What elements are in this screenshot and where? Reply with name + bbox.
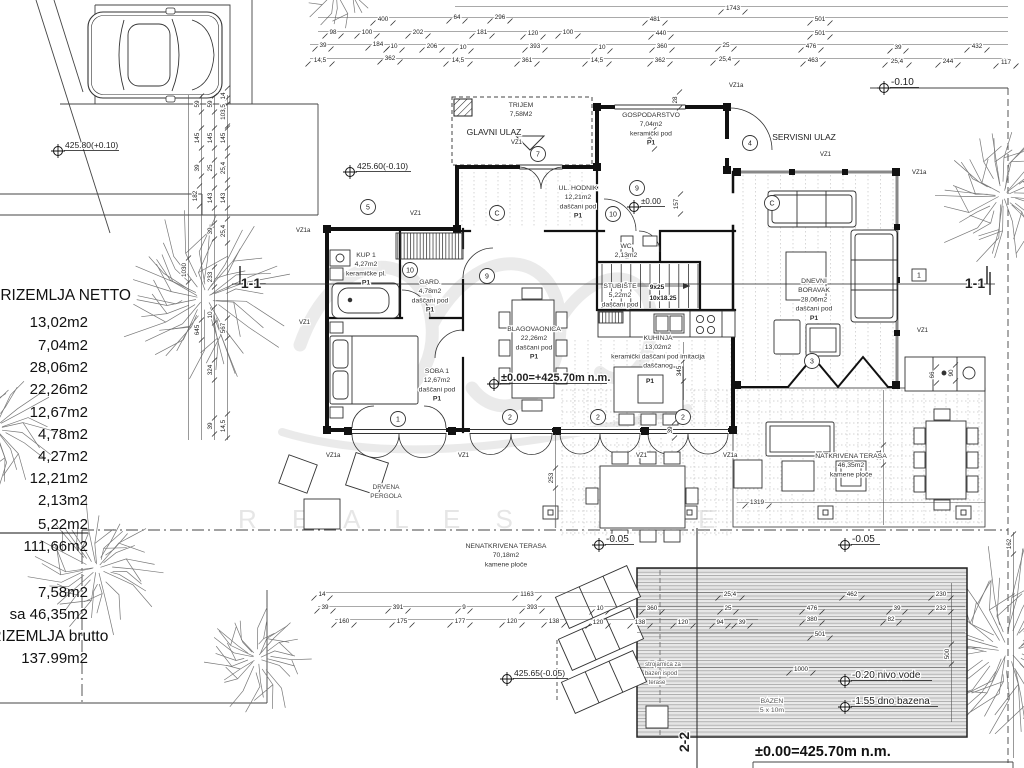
dim-text: 481 [650, 16, 661, 23]
area-value: 28,06m2 [30, 359, 88, 376]
sun-loungers [555, 566, 646, 714]
dim-text: 244 [943, 58, 954, 65]
room-label-stubiste: daščani pod [602, 301, 639, 308]
room-label-soba-1: daščani pod [419, 386, 456, 393]
room-label-natkrivena-terasa: 46,35m2 [838, 462, 865, 469]
dim-text: 98 [329, 29, 337, 36]
tree [124, 210, 290, 379]
dim-text: 463 [808, 57, 819, 64]
dim-text: 39 [894, 44, 902, 51]
annotation-label: terase [649, 680, 666, 686]
room-label-gard: daščani pod [412, 297, 449, 304]
kitchen-counter [598, 311, 735, 337]
room-label-blagovaonica: BLAGOVAONICA [507, 326, 561, 333]
dim-text: 145 [207, 132, 214, 143]
position-marker-text: 9 [635, 185, 639, 192]
area-value: 7,58m2 [38, 584, 88, 601]
dim-text: 25 [722, 42, 730, 49]
room-label-wc: 2,13m2 [615, 252, 638, 259]
dim-text: 1163 [520, 591, 534, 598]
room-label-blagovaonica: daščani pod [516, 344, 553, 351]
room-label-dnevni-boravak: 28,06m2 [801, 296, 828, 303]
area-table-total-label: PRIZEMLJA brutto [0, 628, 108, 645]
room-label-dnevni-boravak: BORAVAK [798, 287, 830, 294]
dim-text: 440 [656, 30, 667, 37]
dim-text: 103,5 [220, 104, 227, 120]
room-label-kup-1: P1 [362, 280, 371, 287]
dim-text: 100 [362, 29, 373, 36]
room-label-kup-1: 4,27m2 [355, 261, 378, 268]
dim-text: 100 [563, 29, 574, 36]
dim-text: 182 [192, 190, 199, 201]
elevation-text: -0.05 [606, 534, 629, 545]
room-label-gard: P1 [426, 307, 435, 314]
dim-text: 120 [528, 30, 539, 37]
dim-text: 391 [393, 604, 404, 611]
dim-text: 10 [598, 44, 606, 51]
dim-text: 39 [319, 42, 327, 49]
dim-text: 360 [647, 605, 658, 612]
dim-text: 39 [194, 164, 201, 172]
room-label-natkrivena-terasa: NATKRIVENA TERASA [815, 453, 887, 460]
elevation-text: 425.80(+0.10) [65, 140, 118, 150]
dim-text: 253 [548, 472, 555, 483]
dim-text: 202 [413, 29, 424, 36]
dim-text: 25,4 [220, 224, 227, 237]
area-value: 12,21m2 [30, 470, 88, 487]
dim-text: 39 [667, 426, 674, 434]
living-room-furniture [768, 191, 897, 356]
dim-text: 25 [207, 164, 214, 172]
dim-text: 181 [477, 29, 488, 36]
wall-type-label: VZ1 [458, 453, 470, 459]
room-label-gard: 4,78m2 [419, 288, 442, 295]
annotation-label: 9x25 [650, 284, 665, 291]
dim-text: 25,4 [891, 58, 904, 65]
room-label-nenatkrivena-terasa: kamene ploče [485, 561, 528, 568]
dim-text: 25,4 [220, 161, 227, 174]
dim-text: 59 [194, 100, 201, 108]
section-label: 1-1 [241, 275, 261, 291]
dim-text: 1743 [726, 5, 741, 12]
dim-text: 25,4 [724, 591, 737, 598]
area-value: 4,78m2 [38, 426, 88, 443]
position-marker-text: 10 [609, 211, 617, 218]
dim-text: 82 [887, 616, 895, 623]
position-marker-text: 10 [406, 267, 414, 274]
wall-type-label: VZ1a [326, 453, 341, 459]
dim-text: 64 [453, 14, 461, 21]
dim-text: 120 [507, 618, 518, 625]
elevation-marker: ±0.00 [627, 197, 665, 214]
room-label-gospodarstvo: keramički pod [630, 130, 672, 137]
outdoor-kitchen [905, 357, 985, 391]
room-label-gospodarstvo: 7,04m2 [640, 121, 663, 128]
position-marker-text: C [769, 200, 774, 207]
position-marker-text: 5 [366, 204, 370, 211]
pool-machine-room [646, 706, 668, 728]
dim-text: 10 [596, 605, 604, 612]
position-marker-text: 1 [396, 416, 400, 423]
dim-text: 39 [893, 605, 901, 612]
dim-text: 145 [220, 132, 227, 143]
dim-text: 14 [318, 591, 326, 598]
room-label-bazen: BAZEN [761, 698, 784, 705]
dim-text: 362 [655, 57, 666, 64]
section-label: 1-1 [965, 275, 985, 291]
room-label-blagovaonica: P1 [530, 354, 539, 361]
room-label-bazen: 5 x 10m [760, 707, 785, 714]
dim-text: 120 [593, 619, 604, 626]
dim-text: 59 [207, 100, 214, 108]
elevation-marker: 425.60(-0.10) [343, 161, 411, 179]
dim-text: 25 [724, 605, 732, 612]
room-label-kup-1: KUP 1 [356, 252, 376, 259]
room-label-soba-1: 12,67m2 [424, 377, 451, 384]
dim-text: 501 [815, 30, 826, 37]
dim-text: 94 [716, 619, 724, 626]
dim-text: 567 [220, 322, 227, 333]
dim-text: 39 [321, 604, 329, 611]
dim-text: 345 [676, 365, 683, 376]
dim-text: 296 [495, 14, 506, 21]
area-value: 7,04m2 [38, 337, 88, 354]
area-value: 22,26m2 [30, 381, 88, 398]
dim-text: 476 [807, 605, 818, 612]
dim-text: 177 [455, 618, 466, 625]
room-label-blagovaonica: 22,26m2 [521, 335, 548, 342]
area-value: 2,13m2 [38, 492, 88, 509]
porch-pillar [454, 99, 472, 116]
pool-basin [637, 568, 967, 737]
dim-text: 184 [373, 41, 384, 48]
room-label-trijem: TRIJEM [509, 102, 534, 109]
annotation-label: SERVISNI ULAZ [772, 132, 836, 142]
dim-text: 28 [672, 96, 679, 104]
elevation-text: 425.60(-0.10) [357, 161, 408, 171]
annotation-label: DRVENA [373, 484, 401, 491]
area-value: 111,66m2 [24, 538, 89, 555]
room-label-kup-1: keramičke pl. [346, 270, 386, 277]
position-marker-text: 2 [596, 414, 600, 421]
wall-type-label: VZ1a [723, 453, 738, 459]
dim-text: 400 [378, 16, 389, 23]
elevation-text: -0.05 [852, 534, 875, 545]
dim-text: 160 [339, 618, 350, 625]
dim-text: 1000 [794, 666, 809, 673]
wall-type-label: VZ1a [912, 170, 927, 176]
kitchen-table [614, 367, 683, 425]
position-marker-text: 7 [536, 151, 540, 158]
wall-type-label: VZ1 [410, 211, 422, 217]
room-label-gospodarstvo: GOSPODARSTVO [622, 112, 680, 119]
room-label-kuhinja: 13,02m2 [645, 344, 672, 351]
room-label-stubiste: 5,22m2 [609, 292, 632, 299]
wall-type-label: VZ1 [917, 328, 929, 334]
room-label-soba-1: P1 [433, 396, 442, 403]
room-label-trijem: 7,58M2 [510, 111, 533, 118]
dim-text: 360 [657, 43, 668, 50]
room-label-natkrivena-terasa: kamene ploče [830, 471, 873, 478]
wall-type-label: VZ1a [729, 83, 744, 89]
dim-text: 14,5 [314, 57, 327, 64]
room-label-nenatkrivena-terasa: 70,18m2 [493, 552, 520, 559]
dim-text: 157 [673, 198, 680, 209]
terrace-dining [914, 409, 978, 510]
dim-text: 10 [390, 43, 398, 50]
dim-text: 120 [678, 619, 689, 626]
dim-text: 501 [815, 16, 826, 23]
position-marker-text: 2 [681, 414, 685, 421]
area-table-title: PRIZEMLJA NETTO [0, 287, 131, 304]
elevation-marker: -0.05 [838, 534, 880, 552]
dim-text: 39 [738, 619, 746, 626]
room-label-ul-hodnik: 12,21m2 [565, 194, 592, 201]
position-marker-text: 2 [508, 414, 512, 421]
wall-type-label: VZ1 [820, 152, 832, 158]
car [88, 8, 222, 102]
dim-text: 39 [207, 422, 214, 430]
area-value: 4,27m2 [38, 448, 88, 465]
area-value: sa 46,35m2 [10, 606, 88, 623]
room-label-stubiste: STUBIŠTE [603, 281, 637, 290]
room-label-ul-hodnik: daščani pod [560, 203, 597, 210]
elevation-text: 425.65(-0.05) [514, 668, 565, 678]
dim-text: 1030 [181, 263, 188, 278]
dim-text: 117 [1001, 59, 1012, 66]
elevation-marker: -0.10 [877, 77, 919, 95]
elevation-text: ±0.00=+425.70m n.m. [501, 372, 610, 384]
dim-text: 10 [459, 44, 467, 51]
room-label-dnevni-boravak: DNEVNI [801, 278, 827, 285]
room-label-gospodarstvo: P1 [647, 140, 656, 147]
dim-text: 393 [530, 43, 541, 50]
room-label-dnevni-boravak: P1 [810, 315, 819, 322]
wardrobe [396, 233, 463, 259]
dim-text: 324 [207, 364, 214, 375]
area-table-total-value: 137.99m2 [21, 650, 88, 667]
pool [637, 568, 967, 737]
dim-text: 175 [397, 618, 408, 625]
room-label-dnevni-boravak: daščani pod [796, 306, 833, 313]
dim-text: 362 [385, 55, 396, 62]
dim-text: 232 [936, 605, 947, 612]
tree [935, 132, 1024, 262]
dim-text: 25,4 [719, 56, 732, 63]
area-value: 12,67m2 [30, 404, 88, 421]
dim-text: 14,5 [220, 419, 227, 432]
dim-text: 143 [220, 192, 227, 203]
dim-text: 361 [522, 57, 533, 64]
dim-text: 230 [936, 591, 947, 598]
annotation-label: 10x18.25 [649, 295, 676, 302]
room-label-nenatkrivena-terasa: NENATKRIVENA TERASA [466, 543, 547, 550]
dim-text: 39 [207, 227, 214, 235]
dim-text: 162 [1006, 538, 1013, 549]
boxed-marker-text: 1 [917, 272, 921, 279]
annotation-label: bazen ispod [645, 671, 677, 677]
dim-text: 233 [207, 271, 214, 282]
room-label-ul-hodnik: P1 [574, 213, 583, 220]
room-label-wc: WC [620, 243, 631, 250]
dim-text: 14 [220, 92, 227, 100]
annotation-label: P1 [646, 378, 654, 385]
position-marker-text: 4 [748, 140, 752, 147]
position-marker-text: 9 [485, 273, 489, 280]
wall-type-label: VZ1 [511, 140, 523, 146]
dim-text: 143 [207, 192, 214, 203]
dim-text: 500 [944, 648, 951, 659]
dim-text: 90 [948, 369, 955, 377]
dim-text: 14,5 [591, 57, 604, 64]
datum-note: ±0.00=425.70m n.m. [755, 744, 891, 760]
tree [299, 0, 368, 28]
dim-text: 462 [847, 591, 858, 598]
wall-type-label: VZ1a [296, 228, 311, 234]
area-value: 5,22m2 [38, 516, 88, 533]
room-label-ul-hodnik: UL. HODNIK [559, 185, 598, 192]
dim-text: 138 [635, 619, 646, 626]
dim-text: 138 [549, 618, 560, 625]
dim-text: 9 [462, 604, 466, 611]
elevation-marker: 425.65(-0.05) [500, 668, 568, 686]
wall-type-label: VZ1 [636, 453, 648, 459]
elevation-marker: -0.05 [592, 534, 634, 552]
bed [330, 322, 418, 418]
elevation-text: ±0.00 [641, 197, 662, 206]
section-label: 2-2 [676, 732, 692, 752]
room-label-gard: GARD. [419, 279, 441, 286]
dim-text: 501 [815, 631, 826, 638]
position-marker-text: 3 [810, 358, 814, 365]
elevation-text: -0.20 nivo vode [852, 670, 921, 681]
annotation-label: GLAVNI ULAZ [467, 127, 522, 137]
room-label-soba-1: SOBA 1 [425, 368, 449, 375]
tree [204, 608, 312, 713]
dim-text: 66 [929, 371, 936, 379]
dim-text: 14,5 [452, 57, 465, 64]
dim-text: 145 [194, 132, 201, 143]
dim-text: 476 [806, 43, 817, 50]
elevation-text: -1.55 dno bazena [852, 696, 930, 707]
area-value: 13,02m2 [30, 314, 88, 331]
dim-text: 432 [972, 43, 983, 50]
dim-text: 1319 [750, 499, 765, 506]
floor-plan-canvas: R E A L E S T A T E [0, 0, 1024, 768]
annotation-label: strojarnica za [645, 662, 681, 668]
room-label-kuhinja: daščanog [643, 363, 673, 370]
wall-type-label: VZ1 [299, 320, 311, 326]
elevation-text: -0.10 [891, 77, 914, 88]
room-label-kuhinja: keramički daščani pod imitacija [611, 353, 705, 360]
room-label-kuhinja: KUHINJA [643, 335, 673, 342]
dim-text: 380 [807, 616, 818, 623]
dim-text: 10 [207, 311, 214, 319]
dim-text: 393 [527, 604, 538, 611]
floor-plan-svg: R E A L E S T A T E [0, 0, 1024, 768]
dim-text: 206 [427, 43, 438, 50]
dim-text: 645 [194, 324, 201, 335]
annotation-label: PERGOLA [370, 493, 402, 500]
position-marker-text: C [494, 210, 499, 217]
